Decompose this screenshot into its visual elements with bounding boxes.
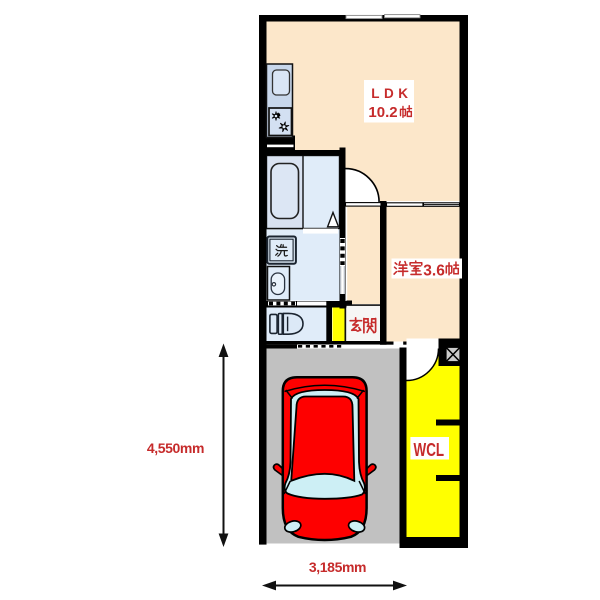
svg-text:3.6: 3.6 (423, 263, 445, 280)
svg-text:LDK: LDK (371, 86, 412, 101)
svg-text:10.2: 10.2 (368, 104, 397, 121)
svg-text:3,185mm: 3,185mm (309, 559, 366, 575)
svg-text:4,550mm: 4,550mm (147, 440, 204, 456)
svg-text:WCL: WCL (414, 439, 445, 460)
